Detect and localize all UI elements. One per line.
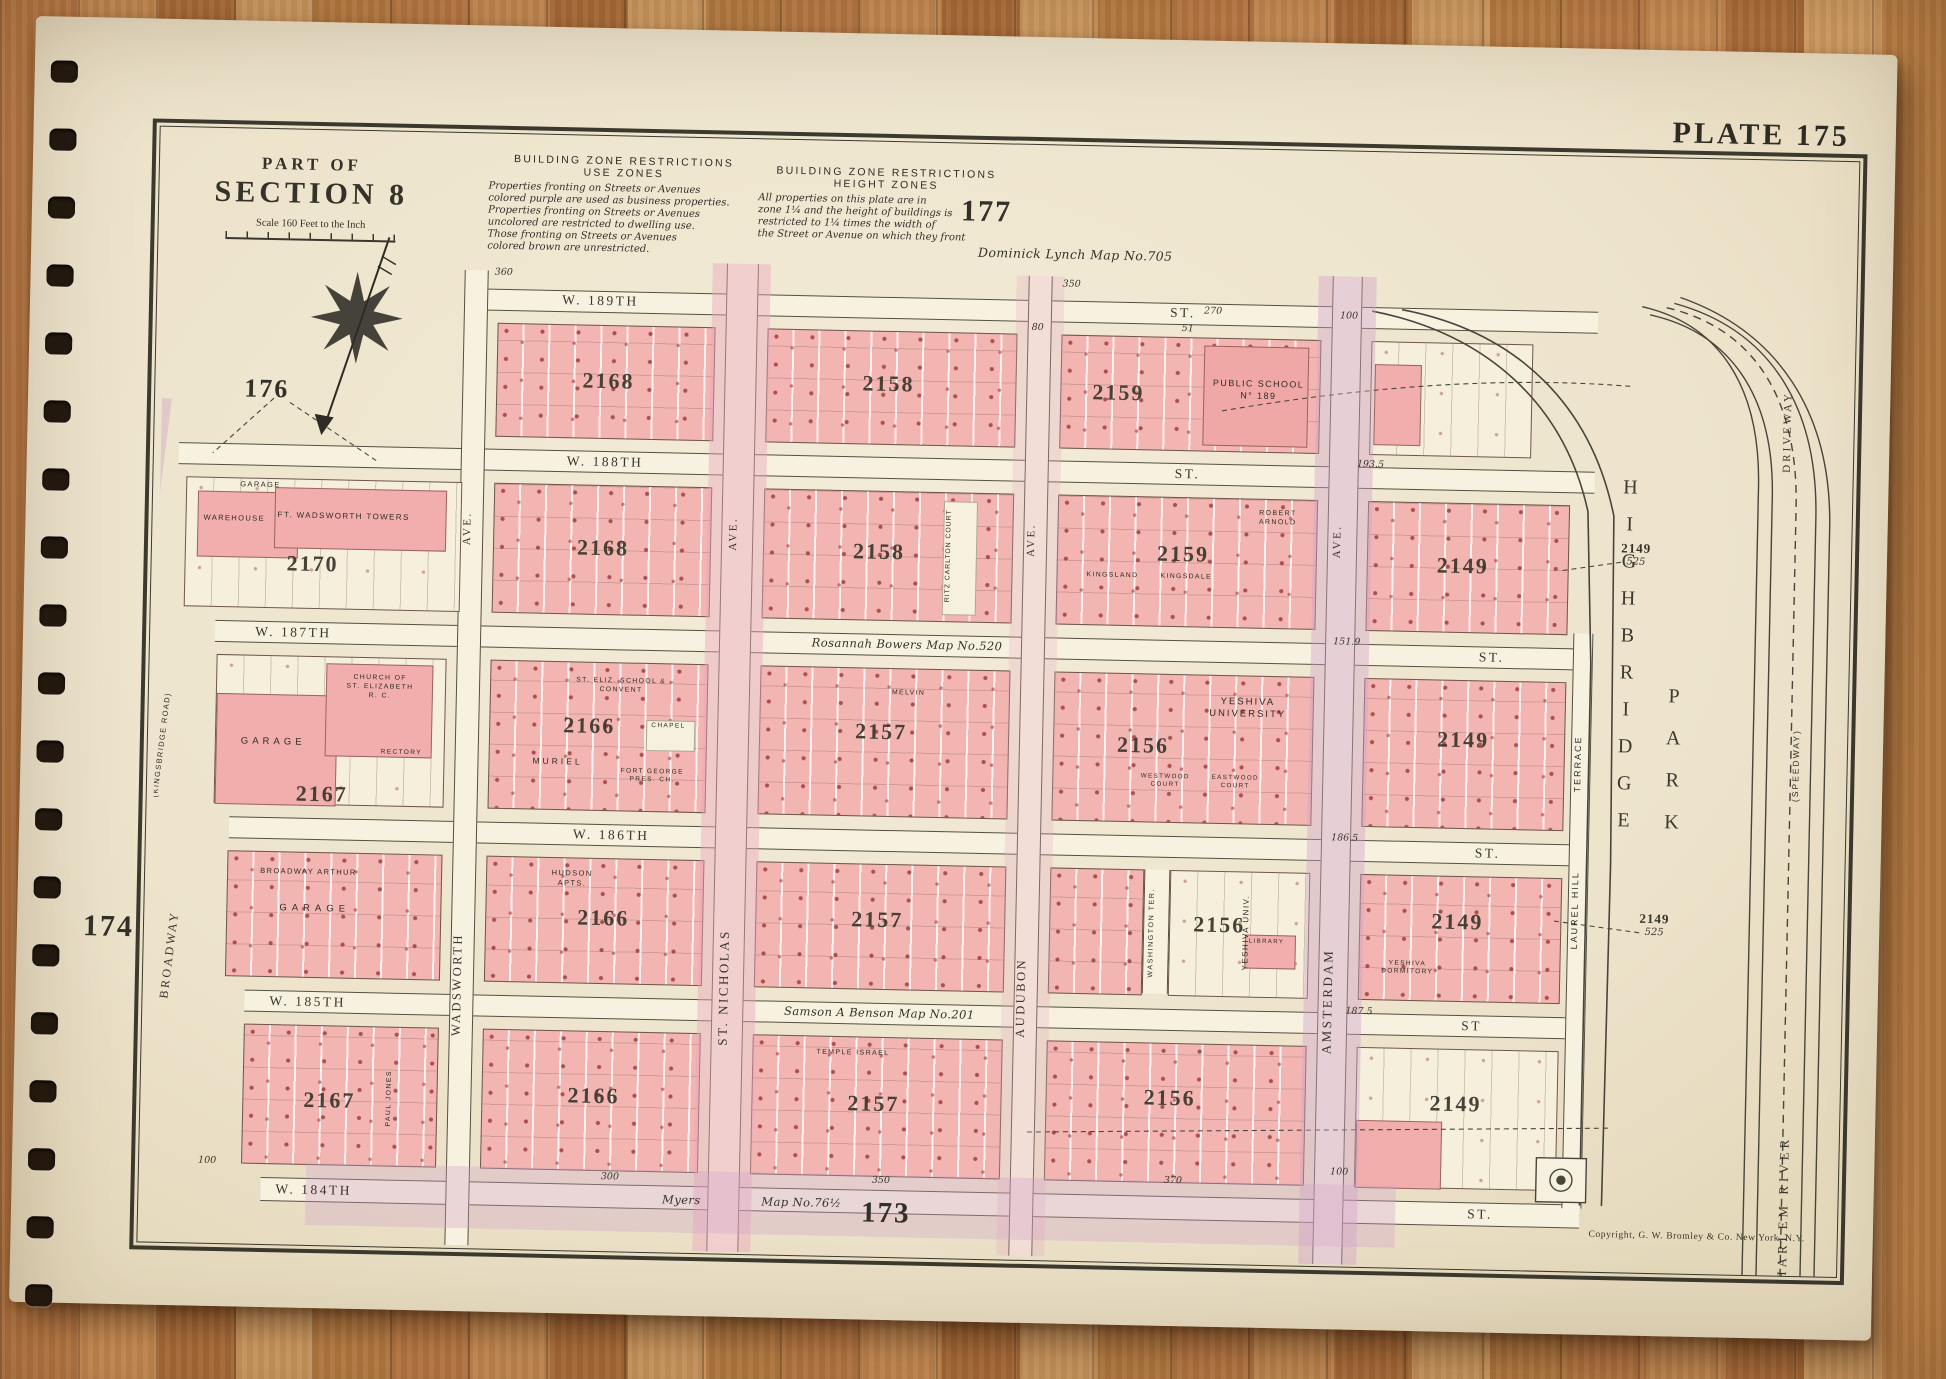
binding-hole	[35, 808, 62, 831]
garage-label-r2: GARAGE	[240, 479, 281, 490]
block-r1-east	[1369, 341, 1533, 458]
block-2157-r4-number: 2157	[851, 906, 904, 933]
block-2158-r1-number: 2158	[862, 370, 915, 397]
block-2149-r5-buildings	[1355, 1120, 1442, 1190]
block-2167-r5-number: 2167	[303, 1087, 356, 1114]
adjacent-plate-177: 177	[961, 194, 1013, 229]
compass-rose	[308, 236, 404, 437]
binding-hole	[46, 264, 73, 287]
kingsland-label: KINGSLAND	[1086, 571, 1138, 581]
broadway-arthur-label: BROADWAY ARTHUR	[260, 866, 357, 878]
lynch-map-note: Dominick Lynch Map No.705	[945, 244, 1205, 264]
dim-193-5: 193.5	[1357, 459, 1384, 471]
margin-ref-upper-sub: 525	[1621, 556, 1651, 568]
binding-hole	[26, 1216, 53, 1239]
temple-israel-label: TEMPLE ISRAEL	[816, 1048, 889, 1059]
block-2159-r2-number: 2159	[1157, 541, 1210, 568]
kingsdale-label: KINGSDALE	[1160, 573, 1212, 583]
label-w188-st: ST.	[1174, 466, 1200, 483]
label-park: PARK	[1658, 685, 1686, 905]
dim-151-9: 151.9	[1333, 636, 1360, 648]
binding-hole	[31, 1012, 58, 1035]
block-2157-r3-number: 2157	[855, 718, 908, 745]
adjacent-plate-174: 174	[83, 909, 135, 944]
atlas-paper-sheet: PLATE 175 174 PART OF SECTION 8 Scale 16…	[9, 16, 1898, 1341]
label-w186: W. 186TH	[573, 826, 650, 844]
map-area: PART OF SECTION 8 Scale 160 Feet to the …	[144, 134, 1860, 1278]
label-wadsworth-ave: AVE.	[461, 485, 474, 545]
binding-hole	[49, 128, 76, 151]
margin-ref-lower-num: 2149	[1639, 911, 1669, 928]
yeshiva-university-label: YESHIVA UNIVERSITY	[1198, 695, 1298, 722]
binding-hole	[41, 536, 68, 559]
label-w187-st: ST.	[1479, 649, 1505, 666]
label-audubon-ave: AVE.	[1025, 497, 1038, 557]
robert-arnold-label: ROBERT ARNOLD	[1248, 508, 1308, 527]
block-2156-r5	[1044, 1040, 1307, 1185]
binding-hole	[38, 672, 65, 695]
binding-hole	[32, 944, 59, 967]
block-2158-r2-number: 2158	[853, 538, 906, 565]
dim-350: 350	[1062, 279, 1080, 290]
chapel-label: CHAPEL	[651, 722, 686, 731]
yeshiva-dormitory-label: YESHIVA DORMITORY	[1372, 959, 1442, 977]
label-terrace: TERRACE	[1571, 703, 1585, 823]
label-driveway: DRIVEWAY	[1781, 338, 1796, 473]
adjacent-plate-173: 173	[861, 1197, 911, 1231]
block-2149-r5-number: 2149	[1429, 1090, 1482, 1117]
section-label: SECTION 8	[196, 174, 427, 213]
eastwood-court-label: EASTWOOD COURT	[1202, 774, 1268, 792]
block-2149-r3	[1361, 678, 1566, 831]
label-w185-st: ST	[1461, 1018, 1482, 1034]
scale-bar	[225, 231, 395, 243]
binding-hole	[29, 1080, 56, 1103]
part-of-label: PART OF	[197, 152, 427, 177]
binding-hole	[39, 604, 66, 627]
warehouse-label: WAREHOUSE	[203, 513, 265, 524]
block-2170	[184, 476, 463, 612]
broadway-arthur-garage-label: GARAGE	[279, 902, 350, 916]
block-r1-east-buildings	[1373, 365, 1421, 446]
dim-350-bottom: 350	[872, 1175, 890, 1186]
scale-label: Scale 160 Feet to the Inch	[196, 216, 426, 232]
photo-of-atlas-page: PLATE 175 174 PART OF SECTION 8 Scale 16…	[0, 0, 1946, 1379]
use-zones-note: BUILDING ZONE RESTRICTIONS USE ZONES Pro…	[487, 153, 759, 259]
block-2170-number: 2170	[286, 550, 339, 577]
label-w186-st: ST.	[1475, 845, 1501, 862]
st-eliz-school-label: ST. ELIZ. SCHOOL & CONVENT	[566, 676, 676, 696]
binding-hole	[45, 332, 72, 355]
myers-note: Myers	[641, 1192, 721, 1208]
block-2149-r4	[1358, 874, 1563, 1004]
dim-100-bottomright: 100	[1330, 1166, 1348, 1177]
block-2149-r3-number: 2149	[1437, 727, 1490, 754]
block-2156-r5-number: 2156	[1143, 1084, 1196, 1111]
street-broadway	[144, 399, 159, 1250]
map-border-frame: PART OF SECTION 8 Scale 160 Feet to the …	[129, 118, 1867, 1285]
label-w187: W. 187TH	[255, 624, 332, 642]
binding-hole	[25, 1284, 52, 1307]
label-amsterdam-ave: AVE.	[1331, 498, 1344, 558]
label-st-nicholas-ave: AVE.	[727, 491, 740, 551]
block-2156-r4-number: 2156	[1193, 911, 1246, 938]
block-2168-r2-number: 2168	[577, 534, 630, 561]
label-harlem-river: HARLEM RIVER	[1774, 1106, 1794, 1278]
label-kingsbridge-road: (KINGSBRIDGE ROAD)	[147, 670, 175, 820]
label-w184-st: ST.	[1467, 1206, 1493, 1223]
dim-300: 300	[601, 1171, 619, 1182]
copyright-line: Copyright, G. W. Bromley & Co. New York,…	[1485, 1228, 1805, 1245]
dim-370: 370	[1164, 1175, 1182, 1186]
block-2149-r5	[1354, 1047, 1559, 1191]
muriel-label: MURIEL	[532, 756, 582, 768]
block-2166-r3-number: 2166	[563, 712, 616, 739]
label-w189: W. 189TH	[562, 292, 639, 310]
rectory-label: RECTORY	[381, 748, 423, 757]
dim-270: 270	[1204, 306, 1222, 317]
plate-title: PLATE 175	[1600, 115, 1851, 154]
garage-label-r3: GARAGE	[241, 735, 306, 749]
block-2149-r2-number: 2149	[1437, 552, 1490, 579]
binding-hole	[34, 876, 61, 899]
binding-hole	[48, 196, 75, 219]
margin-ref-upper: 2149 525	[1621, 540, 1652, 568]
binding-holes	[36, 16, 1898, 55]
binding-hole	[28, 1148, 55, 1171]
hudson-apts-label: HUDSON APTS.	[540, 868, 604, 889]
dim-100-bottomleft: 100	[198, 1155, 216, 1166]
margin-ref-lower: 2149 525	[1639, 911, 1670, 939]
block-2157-r5-number: 2157	[847, 1090, 900, 1117]
label-broadway: BROADWAY	[156, 824, 193, 1000]
block-2149-r4-number: 2149	[1431, 908, 1484, 935]
map-76-note: Map No.76½	[751, 1194, 851, 1210]
library-label: LIBRARY	[1249, 939, 1285, 948]
label-w185: W. 185TH	[269, 993, 346, 1011]
binding-hole	[36, 740, 63, 763]
block-2156-r3-number: 2156	[1117, 732, 1170, 759]
yeshiva-univ-label: YESHIVA UNIV.	[1240, 880, 1253, 984]
westwood-court-label: WESTWOOD COURT	[1132, 772, 1198, 790]
use-zones-body: Properties fronting on Streets or Avenue…	[487, 181, 758, 259]
block-2167-r3-number: 2167	[295, 781, 348, 808]
dim-80: 80	[1032, 322, 1044, 333]
church-st-elizabeth-label: CHURCH OF ST. ELIZABETH R. C.	[342, 674, 419, 702]
block-2159-r1-number: 2159	[1092, 379, 1145, 406]
binding-hole	[42, 468, 69, 491]
section-header: PART OF SECTION 8 Scale 160 Feet to the …	[195, 152, 427, 243]
label-speedway: (SPEEDWAY)	[1789, 708, 1802, 823]
dim-187-5: 187.5	[1345, 1006, 1372, 1018]
block-2166-r4-number: 2166	[577, 905, 630, 932]
map-border-inner-line: PART OF SECTION 8 Scale 160 Feet to the …	[136, 126, 1860, 1278]
harlem-river-driveway-roads	[1622, 297, 1834, 1278]
adjacent-plate-176: 176	[244, 373, 290, 404]
fort-george-pres-label: FORT GEORGE PRES. CH.	[612, 767, 692, 786]
margin-ref-upper-num: 2149	[1621, 540, 1651, 557]
dim-360: 360	[495, 267, 513, 278]
binding-hole	[43, 400, 70, 423]
label-w184: W. 184TH	[275, 1181, 352, 1199]
block-2156-r4-west	[1048, 867, 1145, 995]
dim-100-topright: 100	[1340, 310, 1358, 321]
public-school-label: PUBLIC SCHOOL N° 189	[1208, 378, 1308, 403]
binding-hole	[51, 60, 78, 83]
label-w188: W. 188TH	[567, 453, 644, 471]
dim-186-5: 186.5	[1331, 832, 1358, 844]
margin-ref-lower-sub: 525	[1639, 927, 1669, 939]
block-2156-r3	[1051, 671, 1314, 825]
melvin-label: MELVIN	[892, 689, 925, 699]
tint-broadway	[144, 392, 172, 1258]
dim-51: 51	[1182, 323, 1194, 334]
block-2166-r5-number: 2166	[567, 1082, 620, 1109]
block-2168-r1-number: 2168	[582, 368, 635, 395]
label-w189-st: ST.	[1170, 305, 1196, 322]
